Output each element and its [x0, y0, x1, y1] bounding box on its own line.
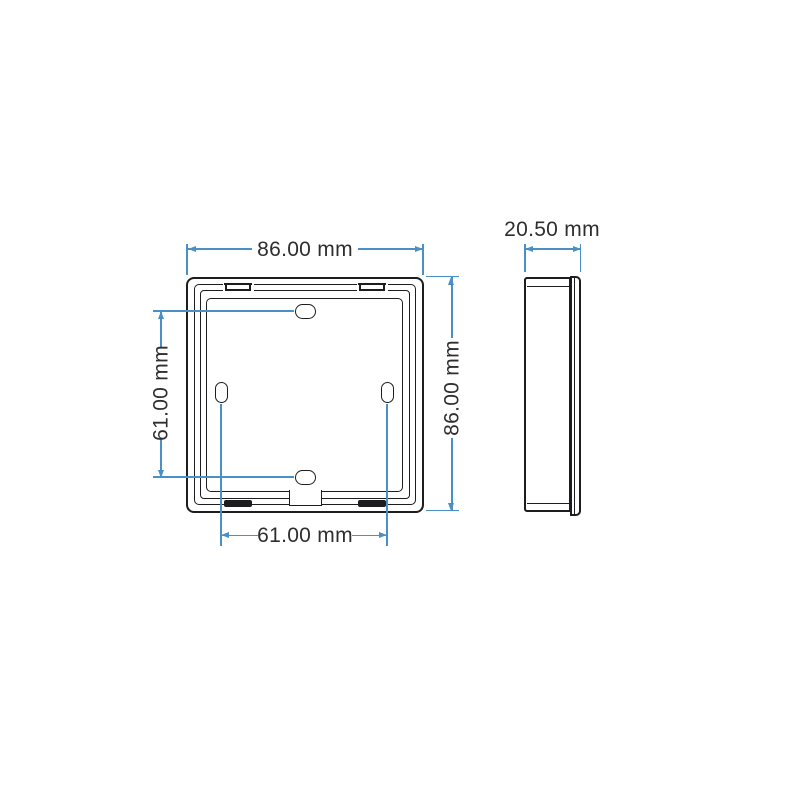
- side-flange: [570, 276, 582, 516]
- top-clip-left-mark: [224, 283, 252, 286]
- cable-channel: [289, 490, 322, 507]
- dim-arrow: [448, 277, 454, 285]
- dim-arrow: [221, 532, 229, 538]
- dim-label-front-width: 86.00 mm: [245, 239, 365, 260]
- bottom-clip-left: [224, 500, 252, 507]
- dim-arrow: [158, 470, 164, 478]
- dim-arrow: [415, 246, 423, 252]
- dim-arrow: [158, 311, 164, 319]
- dim-label-slot-spacing-horizontal: 61.00 mm: [248, 525, 362, 546]
- dimension-line: [358, 248, 423, 250]
- technical-drawing-canvas: 86.00 mm 86.00 mm 61.00 mm 61.00 mm: [0, 0, 800, 800]
- side-body: [524, 277, 571, 512]
- mounting-slot-left: [215, 382, 228, 403]
- inner-recess: [206, 298, 403, 492]
- extension-line: [153, 476, 294, 478]
- dimension-line: [451, 277, 453, 338]
- dim-label-slot-spacing-vertical: 61.00 mm: [151, 345, 172, 441]
- mounting-slot-right: [381, 382, 394, 403]
- bottom-clip-right: [358, 500, 386, 507]
- top-clip-right-mark: [358, 283, 386, 286]
- dim-label-front-height: 86.00 mm: [441, 340, 462, 436]
- side-flange-inner-line: [574, 278, 575, 514]
- side-body-top-line: [527, 286, 570, 288]
- dim-arrow: [188, 246, 196, 252]
- dim-arrow: [448, 503, 454, 511]
- dimension-line: [451, 438, 453, 511]
- extension-line: [386, 404, 388, 546]
- dimension-line: [187, 248, 252, 250]
- dim-arrow: [573, 246, 581, 252]
- extension-line: [153, 310, 294, 312]
- mounting-slot-top: [295, 304, 316, 319]
- dim-label-side-depth: 20.50 mm: [492, 219, 612, 240]
- dim-arrow: [379, 532, 387, 538]
- dim-arrow: [525, 246, 533, 252]
- extension-line: [220, 404, 222, 546]
- mounting-slot-bottom: [295, 470, 316, 485]
- side-body-bottom-line: [527, 503, 570, 505]
